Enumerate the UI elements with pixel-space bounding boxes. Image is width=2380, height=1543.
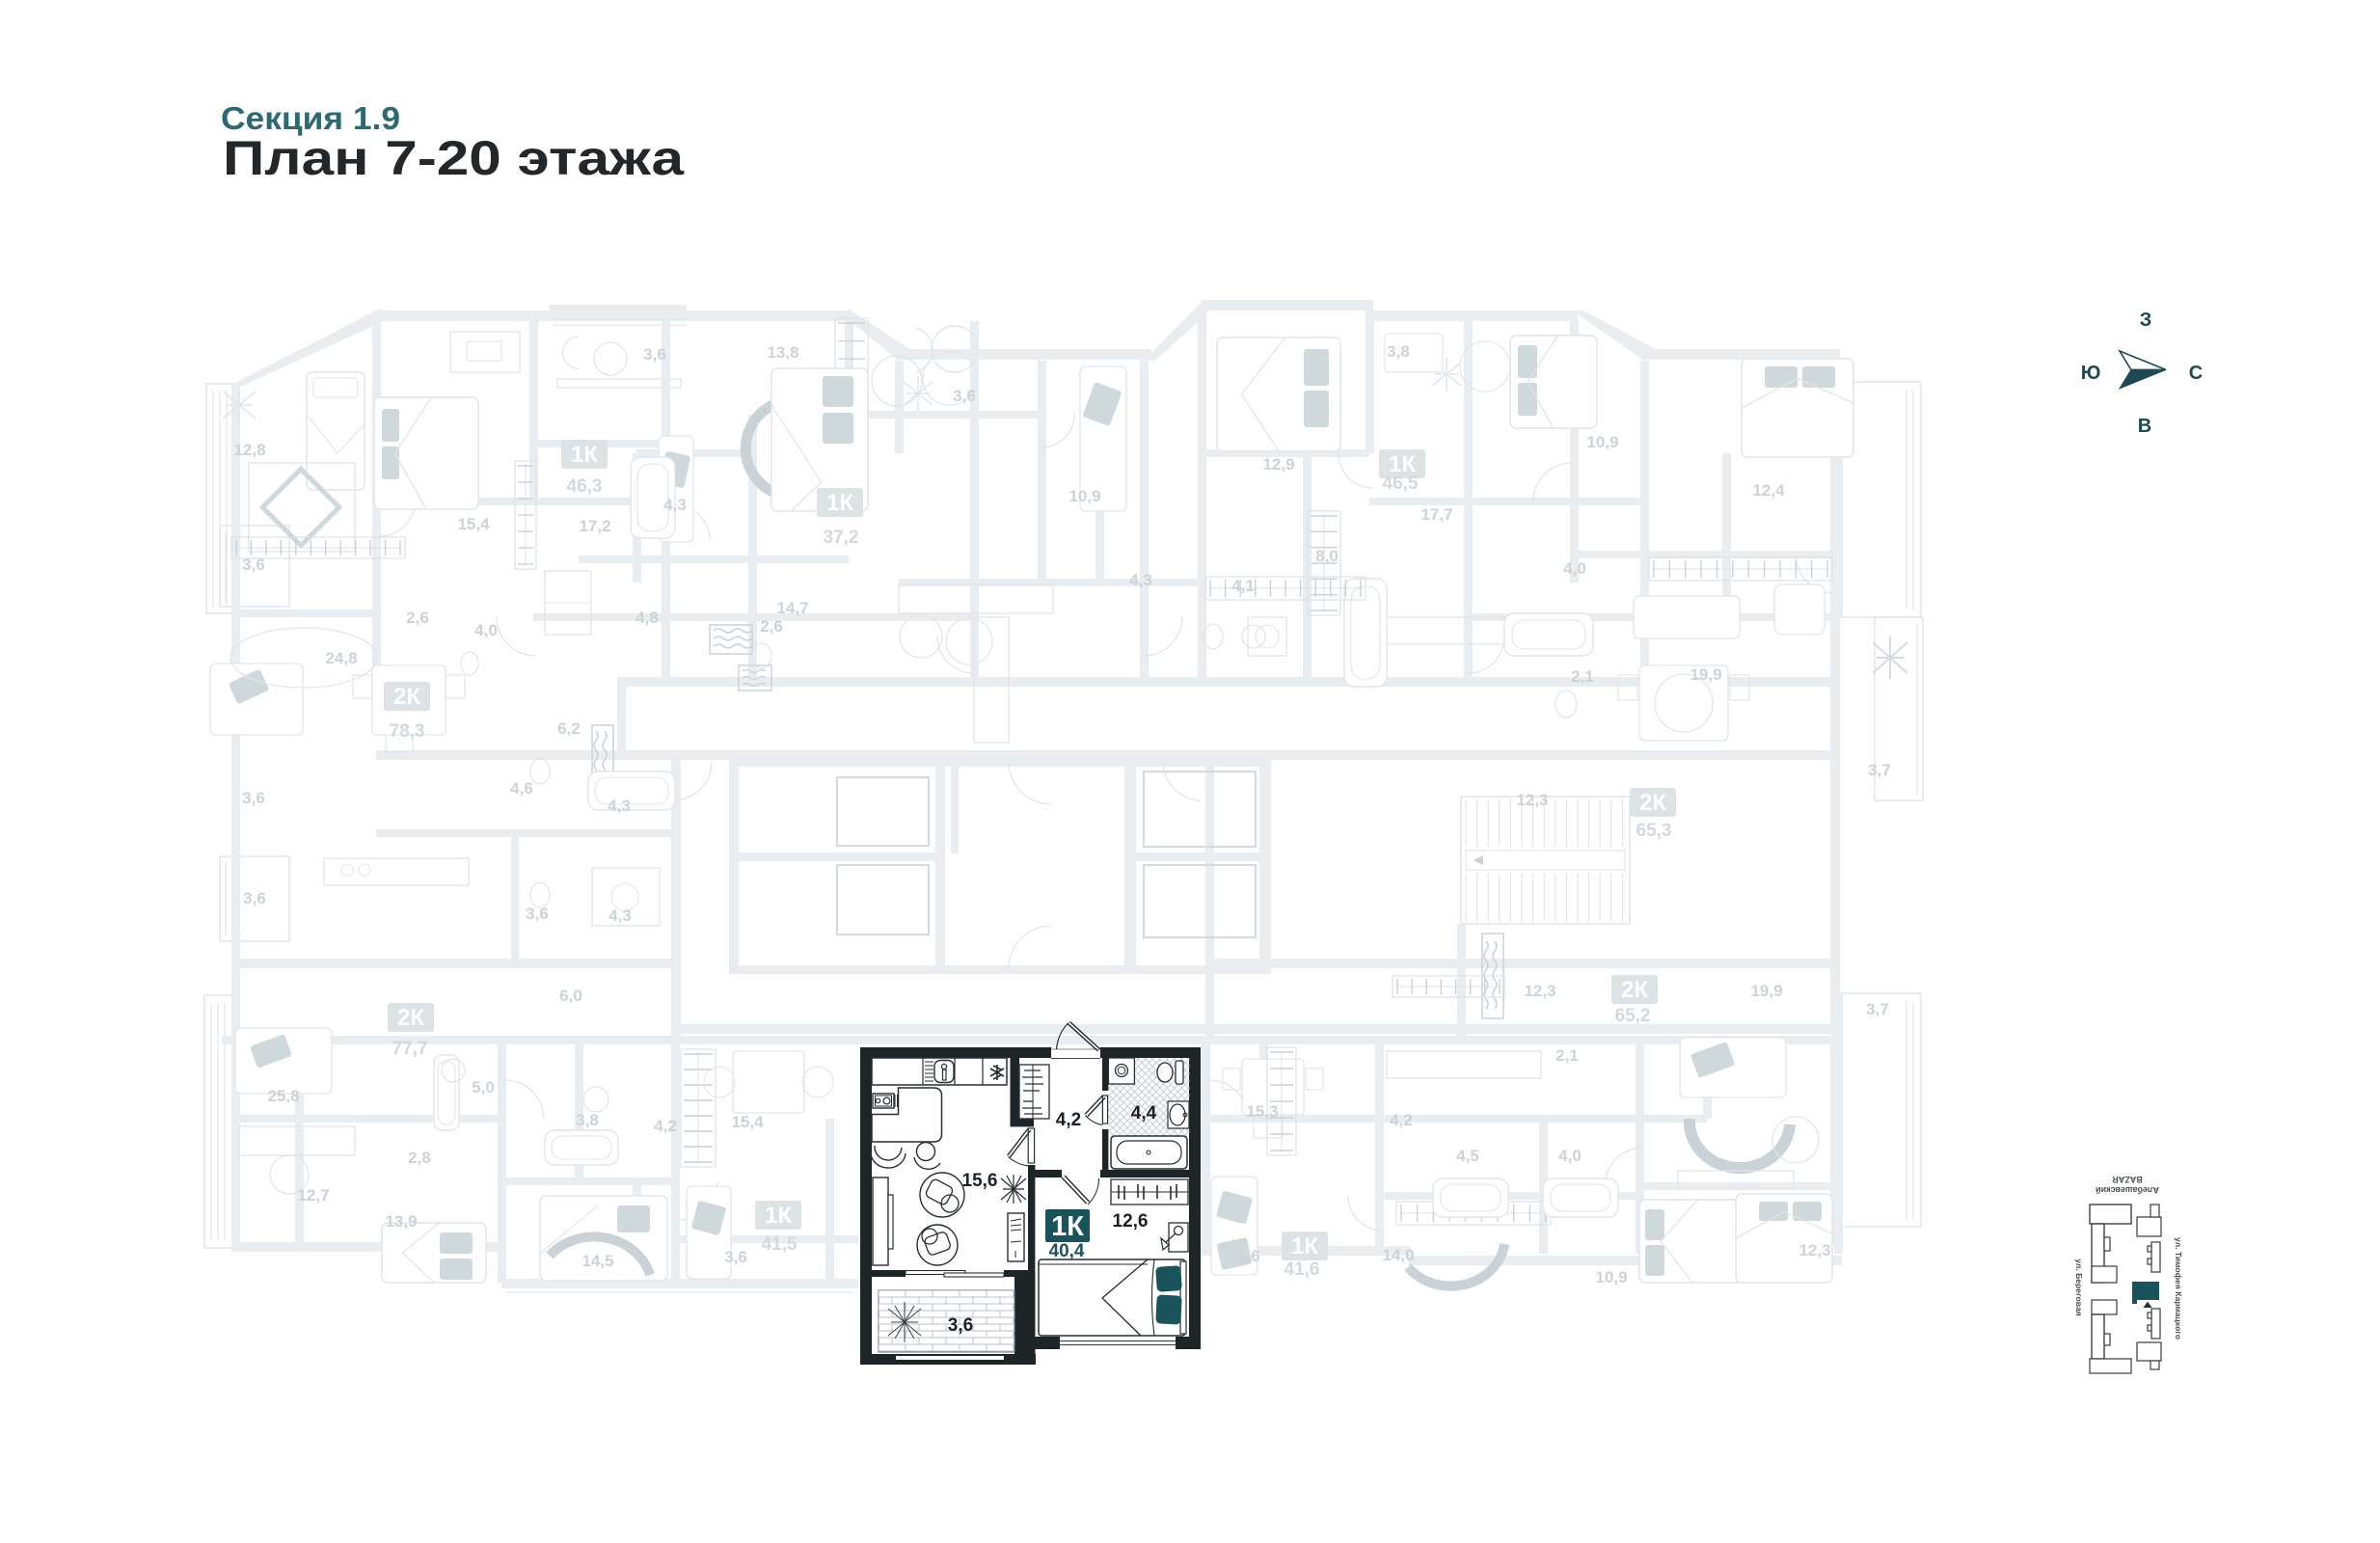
svg-text:3,6: 3,6 <box>243 889 266 907</box>
svg-text:3,6: 3,6 <box>242 555 265 574</box>
svg-text:1К: 1К <box>1051 1211 1084 1242</box>
svg-text:13,9: 13,9 <box>385 1212 417 1231</box>
svg-text:12,4: 12,4 <box>1752 481 1785 500</box>
svg-text:78,3: 78,3 <box>390 721 425 742</box>
svg-text:12,8: 12,8 <box>233 441 265 459</box>
svg-text:12,3: 12,3 <box>1516 791 1548 809</box>
svg-text:10,9: 10,9 <box>1068 487 1100 505</box>
svg-text:3,6: 3,6 <box>724 1248 747 1266</box>
svg-text:2,6: 2,6 <box>760 617 783 636</box>
svg-text:4,3: 4,3 <box>663 496 687 514</box>
svg-text:12,9: 12,9 <box>1262 455 1294 474</box>
svg-text:19,9: 19,9 <box>1750 982 1782 1000</box>
svg-text:3,6: 3,6 <box>1237 1247 1260 1265</box>
svg-text:4,2: 4,2 <box>1390 1111 1413 1129</box>
svg-text:2К: 2К <box>1621 977 1648 1003</box>
svg-text:4,6: 4,6 <box>510 779 533 798</box>
svg-text:3,6: 3,6 <box>242 789 265 807</box>
svg-text:4,2: 4,2 <box>654 1117 677 1135</box>
svg-text:3,6: 3,6 <box>526 905 549 923</box>
svg-text:17,2: 17,2 <box>579 517 610 535</box>
svg-text:ул. Береговая: ул. Береговая <box>2074 1259 2084 1316</box>
svg-text:2К: 2К <box>393 684 420 710</box>
svg-text:1К: 1К <box>826 490 853 516</box>
svg-text:5,0: 5,0 <box>472 1078 495 1096</box>
svg-text:В: В <box>2138 416 2151 437</box>
svg-text:3,6: 3,6 <box>643 345 666 364</box>
svg-text:Алебашевский: Алебашевский <box>2096 1185 2159 1195</box>
svg-text:BAZAR: BAZAR <box>2112 1175 2143 1184</box>
svg-text:15,6: 15,6 <box>962 1171 998 1191</box>
svg-text:10,9: 10,9 <box>1586 433 1618 451</box>
svg-text:З: З <box>2140 310 2152 331</box>
svg-text:13,8: 13,8 <box>767 343 798 362</box>
svg-text:17,7: 17,7 <box>1420 505 1452 524</box>
svg-text:4,8: 4,8 <box>636 609 659 627</box>
svg-text:14,0: 14,0 <box>1382 1246 1414 1264</box>
svg-text:3,6: 3,6 <box>948 1315 973 1336</box>
svg-text:С: С <box>2189 363 2203 384</box>
svg-text:37,2: 37,2 <box>824 528 859 548</box>
svg-text:2,1: 2,1 <box>1555 1046 1579 1065</box>
svg-text:4,0: 4,0 <box>1558 1147 1582 1165</box>
svg-text:46,3: 46,3 <box>567 476 603 497</box>
svg-text:3,8: 3,8 <box>1387 342 1410 361</box>
svg-text:4,3: 4,3 <box>608 797 631 815</box>
svg-text:2К: 2К <box>1639 790 1666 816</box>
svg-text:14,5: 14,5 <box>581 1252 613 1270</box>
svg-text:12,7: 12,7 <box>297 1186 329 1205</box>
svg-text:12,6: 12,6 <box>1113 1211 1149 1232</box>
svg-text:19,9: 19,9 <box>1690 665 1721 684</box>
svg-text:77,7: 77,7 <box>392 1039 428 1059</box>
svg-text:15,4: 15,4 <box>457 515 490 533</box>
svg-text:2,6: 2,6 <box>406 609 429 627</box>
svg-text:65,3: 65,3 <box>1636 821 1672 841</box>
svg-text:15,4: 15,4 <box>731 1113 764 1131</box>
svg-text:24,8: 24,8 <box>325 649 357 667</box>
svg-text:4,0: 4,0 <box>1563 559 1586 578</box>
svg-text:4,0: 4,0 <box>474 621 498 639</box>
svg-text:65,2: 65,2 <box>1615 1006 1651 1026</box>
svg-text:40,4: 40,4 <box>1049 1241 1085 1261</box>
svg-text:3,8: 3,8 <box>576 1111 599 1129</box>
svg-text:3,7: 3,7 <box>1868 761 1891 779</box>
svg-text:41,6: 41,6 <box>1285 1259 1320 1280</box>
svg-text:4,3: 4,3 <box>1129 571 1152 589</box>
svg-text:2К: 2К <box>397 1005 424 1031</box>
svg-text:1К: 1К <box>765 1203 792 1229</box>
svg-text:15,3: 15,3 <box>1246 1102 1278 1121</box>
svg-text:3,7: 3,7 <box>1866 1000 1889 1018</box>
svg-text:14,7: 14,7 <box>776 599 808 617</box>
svg-text:6,0: 6,0 <box>559 987 582 1005</box>
svg-text:10,9: 10,9 <box>1595 1268 1627 1286</box>
svg-text:25,8: 25,8 <box>267 1087 299 1105</box>
svg-text:4,1: 4,1 <box>1231 577 1255 595</box>
svg-text:6,2: 6,2 <box>557 719 581 738</box>
svg-text:4,4: 4,4 <box>1131 1103 1157 1123</box>
svg-text:План 7-20 этажа: План 7-20 этажа <box>223 131 685 185</box>
svg-text:Ю: Ю <box>2081 363 2101 384</box>
svg-text:12,3: 12,3 <box>1799 1241 1830 1259</box>
svg-text:4,3: 4,3 <box>609 907 632 925</box>
svg-text:1К: 1К <box>571 442 598 468</box>
svg-text:2,1: 2,1 <box>1571 667 1594 686</box>
svg-text:1К: 1К <box>1291 1233 1318 1259</box>
svg-text:ул. Тимофея Кармацкого: ул. Тимофея Кармацкого <box>2174 1237 2183 1340</box>
svg-text:41,5: 41,5 <box>762 1234 798 1255</box>
svg-text:8,0: 8,0 <box>1315 547 1339 565</box>
svg-text:2,8: 2,8 <box>408 1149 431 1167</box>
svg-text:46,5: 46,5 <box>1383 474 1419 494</box>
svg-text:12,3: 12,3 <box>1524 982 1555 1000</box>
svg-text:3,6: 3,6 <box>953 387 976 405</box>
svg-text:4,2: 4,2 <box>1056 1110 1081 1130</box>
svg-text:4,5: 4,5 <box>1456 1147 1479 1165</box>
